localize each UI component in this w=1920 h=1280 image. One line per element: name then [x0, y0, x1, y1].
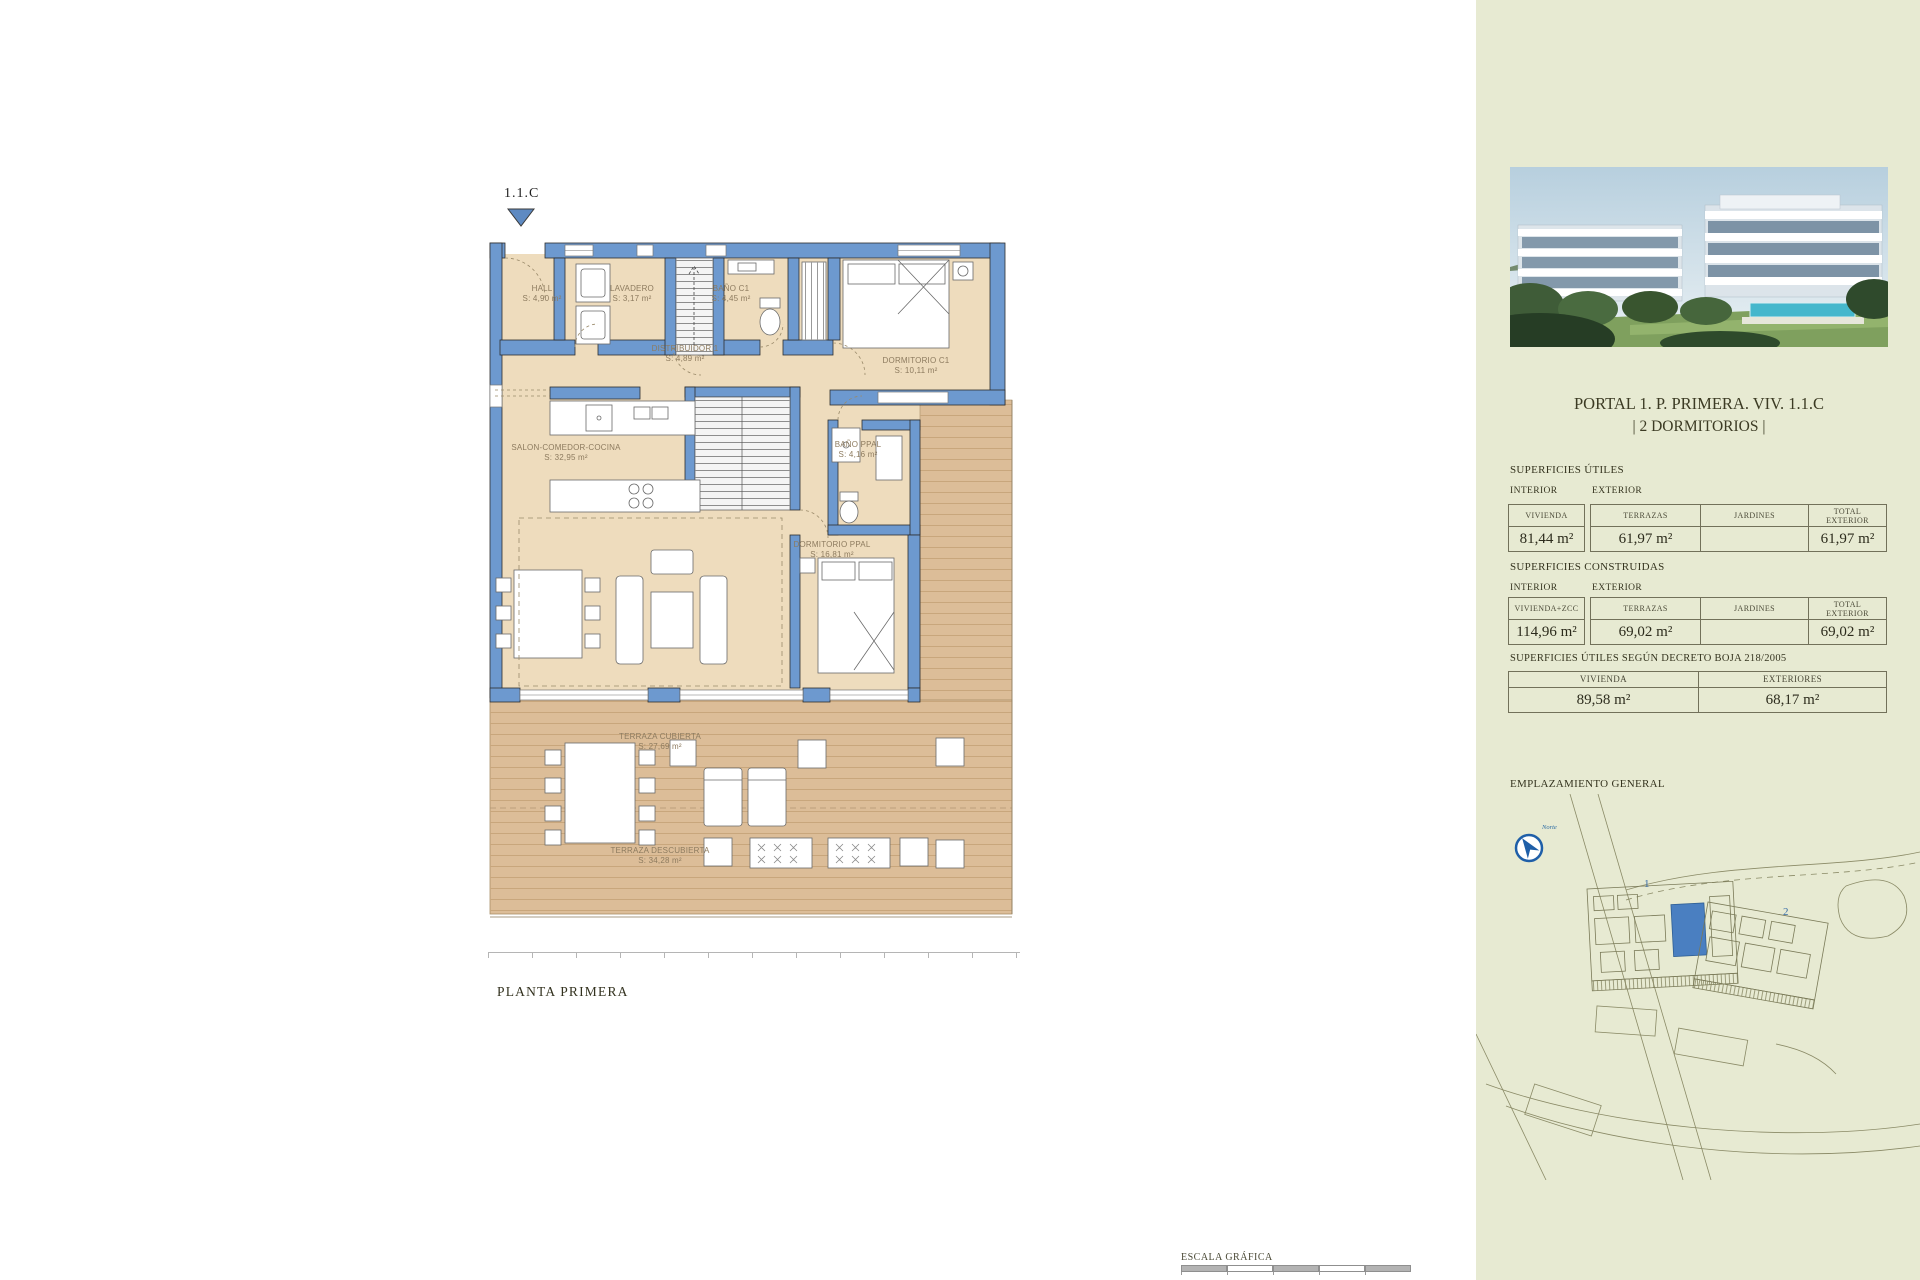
utiles-total-value: 61,97 m²	[1808, 526, 1887, 552]
emplazamiento-heading: EMPLAZAMIENTO GENERAL	[1510, 778, 1665, 790]
unit-title-line1: PORTAL 1. P. PRIMERA. VIV. 1.1.C	[1510, 394, 1888, 414]
info-sidebar: PORTAL 1. P. PRIMERA. VIV. 1.1.C | 2 DOR…	[1476, 0, 1920, 1280]
construidas-heading: SUPERFICIES CONSTRUIDAS	[1510, 561, 1665, 573]
unit-pointer-icon	[506, 208, 536, 228]
room-label-salon: SALON-COMEDOR-COCINAS: 32,95 m²	[506, 443, 626, 463]
room-label-dormitorio-ppal: DORMITORIO PPALS: 16,81 m²	[782, 540, 882, 560]
utiles-vivienda-value: 81,44 m²	[1508, 526, 1585, 552]
floor-title: PLANTA PRIMERA	[497, 984, 629, 1000]
construidas-exterior-label: EXTERIOR	[1592, 583, 1642, 593]
utiles-exterior-label: EXTERIOR	[1592, 486, 1642, 496]
dimension-line	[488, 952, 1020, 958]
room-label-distribuidor: DISTRIBUIDOR 1S: 4,89 m²	[625, 344, 745, 364]
construidas-terrazas-value: 69,02 m²	[1590, 619, 1701, 645]
utiles-interior-label: INTERIOR	[1510, 486, 1558, 496]
construidas-total-value: 69,02 m²	[1808, 619, 1887, 645]
graphic-scale-label: ESCALA GRÁFICA	[1181, 1252, 1411, 1263]
room-label-lavadero: LAVADEROS: 3,17 m²	[592, 284, 672, 304]
room-label-bano-ppal: BAÑO PPALS: 4,16 m²	[818, 440, 898, 460]
utiles-terrazas-value: 61,97 m²	[1590, 526, 1701, 552]
room-label-terraza-descubierta: TERRAZA DESCUBIERTAS: 34,28 m²	[595, 846, 725, 866]
decreto-exteriores-value: 68,17 m²	[1698, 687, 1887, 713]
compass-icon	[1516, 834, 1542, 861]
unit-marker-label: 1.1.C	[504, 186, 539, 202]
construidas-vivienda-value: 114,96 m²	[1508, 619, 1585, 645]
room-label-bano-c1: BAÑO C1S: 4,45 m²	[691, 284, 771, 304]
building-render-photo	[1510, 167, 1888, 347]
construidas-interior-label: INTERIOR	[1510, 583, 1558, 593]
graphic-scale-ticks	[1181, 1272, 1411, 1275]
utiles-heading: SUPERFICIES ÚTILES	[1510, 464, 1624, 476]
construidas-jardines-value	[1700, 619, 1809, 645]
building2-label: 2	[1783, 906, 1789, 918]
site-plan-drawing	[1476, 794, 1920, 1180]
floor-plan: HALLS: 4,90 m² LAVADEROS: 3,17 m² BAÑO C…	[488, 240, 1020, 920]
unit-title-line2: | 2 DORMITORIOS |	[1510, 418, 1888, 436]
room-label-terraza-cubierta: TERRAZA CUBIERTAS: 27,69 m²	[600, 732, 720, 752]
graphic-scale-bar	[1181, 1265, 1411, 1272]
room-label-dormitorio-c1: DORMITORIO C1S: 10,11 m²	[866, 356, 966, 376]
graphic-scale: ESCALA GRÁFICA	[1181, 1252, 1411, 1275]
brochure-page: { "plan": { "marker": "1.1.C", "floor_la…	[0, 0, 1920, 1280]
room-label-hall: HALLS: 4,90 m²	[502, 284, 582, 304]
building1-label: 1	[1644, 878, 1650, 890]
decreto-heading: SUPERFICIES ÚTILES SEGÚN DECRETO BOJA 21…	[1510, 653, 1786, 664]
decreto-vivienda-value: 89,58 m²	[1508, 687, 1699, 713]
utiles-jardines-value	[1700, 526, 1809, 552]
compass-label: Norte	[1542, 824, 1557, 831]
floor-plan-drawing	[488, 240, 1020, 920]
